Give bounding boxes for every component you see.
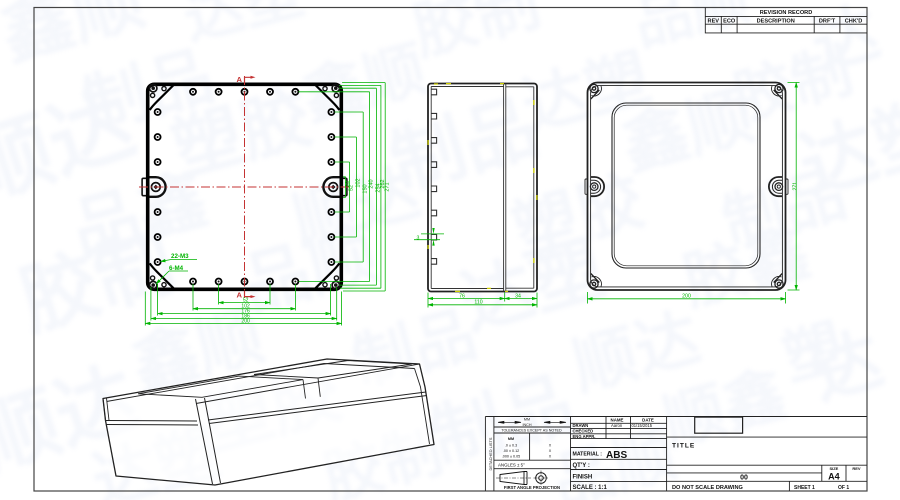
svg-text:ABS: ABS: [606, 450, 627, 461]
svg-text:REV: REV: [852, 466, 861, 471]
svg-text:150: 150: [362, 184, 368, 193]
svg-text:QT'Y :: QT'Y :: [573, 463, 590, 469]
svg-text:ECO: ECO: [723, 18, 736, 24]
svg-text:CHK'D: CHK'D: [845, 18, 863, 24]
svg-text:240: 240: [369, 179, 375, 188]
svg-text:102: 102: [356, 178, 362, 187]
svg-text:FIRST ANGLE PROJECTION: FIRST ANGLE PROJECTION: [504, 485, 560, 490]
svg-text:.000 ± 0.05: .000 ± 0.05: [502, 455, 520, 459]
svg-text:DO NOT SCALE DRAWING: DO NOT SCALE DRAWING: [672, 485, 743, 491]
svg-text:REVISION RECORD: REVISION RECORD: [760, 10, 813, 16]
svg-text:OF 1: OF 1: [838, 485, 849, 491]
svg-text:ANGLES ± 5°: ANGLES ± 5°: [498, 462, 525, 467]
svg-text:FINISH: FINISH: [573, 475, 593, 481]
svg-text:ENG APPR.: ENG APPR.: [573, 434, 596, 439]
svg-text:Aaron: Aaron: [611, 423, 623, 428]
svg-text:SCALE : 1:1: SCALE : 1:1: [573, 485, 608, 491]
svg-text:22-M3: 22-M3: [171, 253, 189, 260]
svg-text:DESCRIPTION: DESCRIPTION: [757, 18, 795, 24]
svg-text:271: 271: [384, 182, 390, 191]
svg-text:200: 200: [682, 293, 691, 299]
svg-text:TITLE: TITLE: [672, 443, 695, 450]
svg-text:200: 200: [241, 318, 250, 324]
svg-text:MM: MM: [524, 418, 530, 422]
svg-text:A4: A4: [828, 471, 840, 481]
svg-text:52: 52: [349, 185, 355, 191]
svg-text:MATERIAL :: MATERIAL :: [573, 452, 603, 458]
svg-text:01/15/2015: 01/15/2015: [632, 423, 653, 428]
svg-text:A: A: [237, 290, 243, 299]
svg-text:.00 ± 0.12: .00 ± 0.12: [503, 449, 519, 453]
svg-text:MM: MM: [508, 437, 514, 441]
svg-text:76: 76: [459, 293, 465, 299]
svg-text:DRF'T: DRF'T: [819, 18, 836, 24]
svg-text:52: 52: [243, 298, 249, 304]
svg-text:SHEET 1: SHEET 1: [794, 485, 815, 491]
svg-text:NAME: NAME: [611, 418, 624, 423]
svg-text:00: 00: [740, 475, 748, 482]
svg-text:3: 3: [417, 235, 420, 241]
svg-text:胶制: 胶制: [405, 0, 547, 69]
svg-text:DATE: DATE: [642, 418, 654, 423]
svg-text:34: 34: [515, 293, 521, 299]
svg-text:271: 271: [793, 182, 799, 191]
svg-text:TOLERANCES EXCEPT AS NOTED: TOLERANCES EXCEPT AS NOTED: [501, 429, 562, 433]
svg-text:DETACHED LISTS: DETACHED LISTS: [488, 437, 493, 470]
svg-text:DRAWN: DRAWN: [573, 423, 589, 428]
svg-text:品顺: 品顺: [627, 0, 755, 58]
svg-text:品顺: 品顺: [234, 216, 385, 325]
svg-text:REV: REV: [708, 18, 720, 24]
svg-text:A: A: [237, 75, 243, 84]
svg-text:110: 110: [474, 300, 482, 306]
svg-text:.0 ± 0.3: .0 ± 0.3: [505, 444, 517, 448]
svg-text:INCH: INCH: [522, 423, 531, 427]
